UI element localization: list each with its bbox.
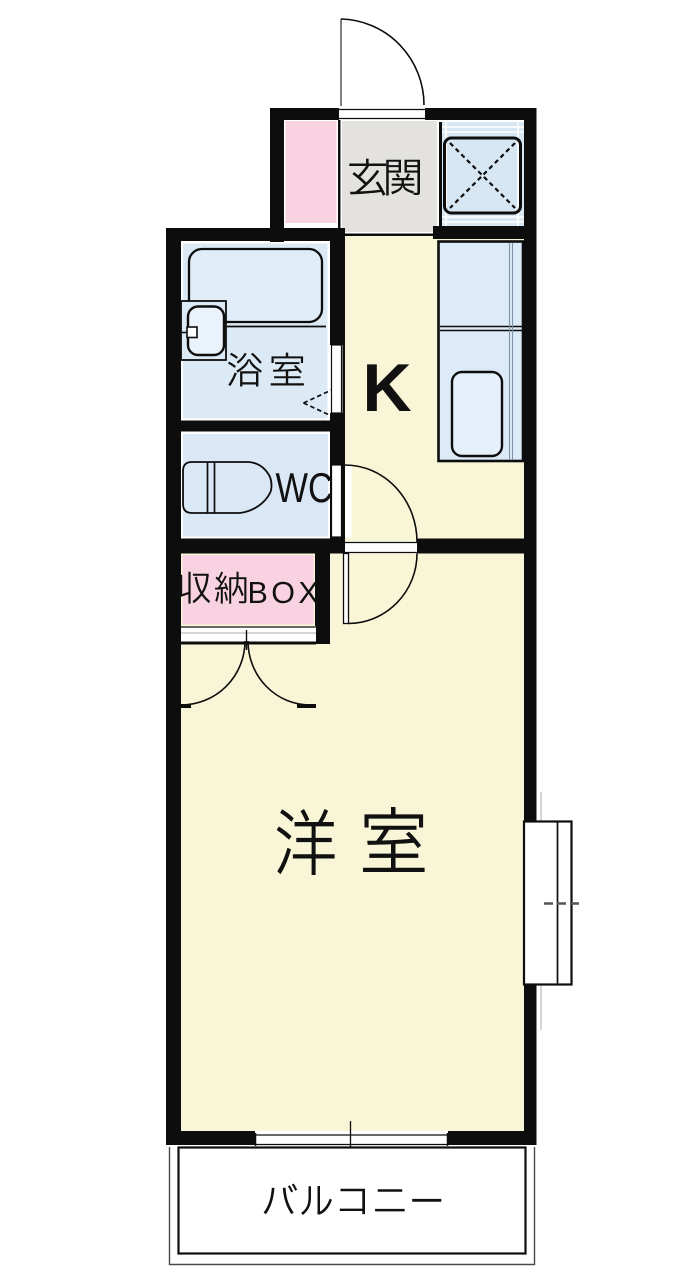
svg-text:WC: WC bbox=[276, 465, 333, 512]
svg-text:BOX: BOX bbox=[248, 576, 323, 610]
svg-text:K: K bbox=[363, 350, 412, 426]
